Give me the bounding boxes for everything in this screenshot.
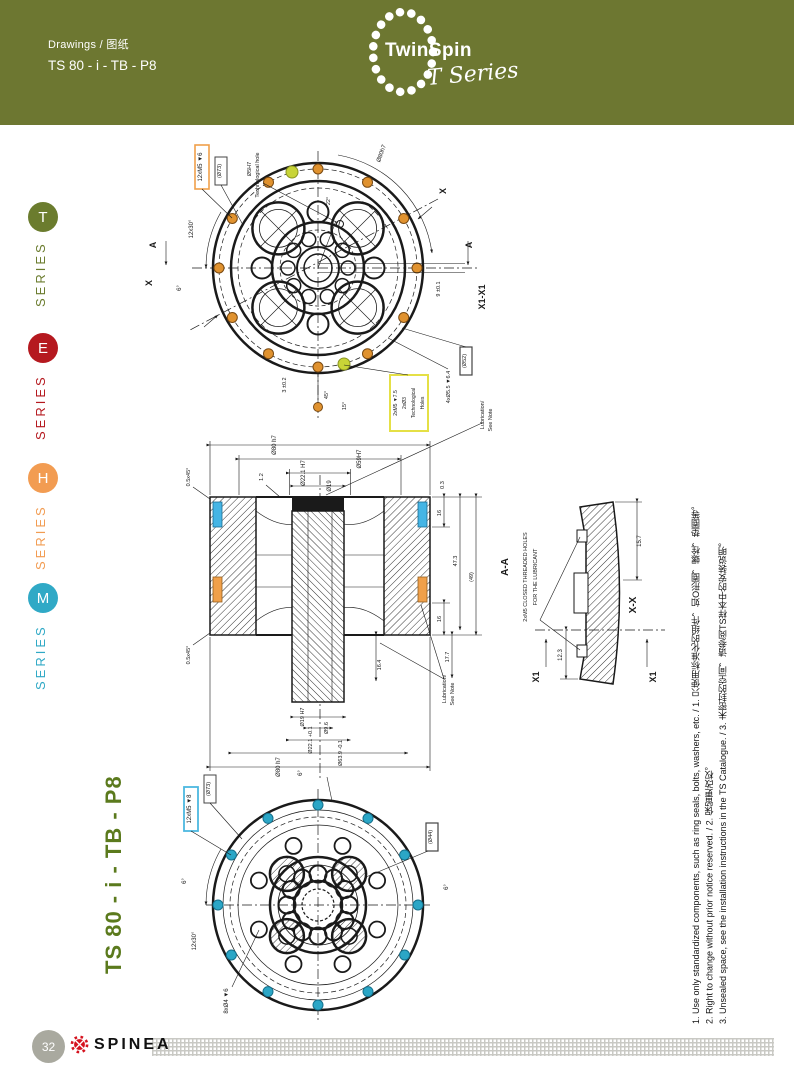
- footnotes: 1. Use only standardized components, suc…: [690, 348, 738, 1024]
- section-marker-x1: X1: [648, 671, 658, 682]
- dim-label: Ø19: [327, 480, 333, 492]
- dim-label: Ø9.6: [324, 722, 330, 734]
- dim-label: 6°: [177, 285, 183, 291]
- dim-label: 45°: [324, 391, 330, 399]
- dim-label: 16.4: [377, 660, 383, 671]
- dim-label: Ø63.9 -0.1: [338, 740, 344, 766]
- dim-label: 16: [437, 616, 443, 622]
- callout-label: 12xM5 ▼6: [198, 152, 204, 182]
- technical-drawing: A A X X 9 ±0.1 X1-X1 12xM5 ▼6 (Ø73) Ø5H7…: [80, 125, 760, 1030]
- dim-label: 9 ±0.1: [436, 281, 442, 296]
- dim-label: 4xØ5.5 ▼6.4: [446, 371, 452, 403]
- section-marker-a: A: [148, 241, 158, 248]
- series-label-e: SERIES: [33, 370, 53, 440]
- footer-pattern: [152, 1038, 774, 1056]
- note-label: Lubrication/: [480, 400, 486, 429]
- footer: 32 SPINEA: [0, 1028, 794, 1077]
- dim-label: Ø22.1 H7: [301, 459, 307, 485]
- section-marker-x: X: [144, 280, 154, 286]
- section-marker-x1: X1: [531, 671, 541, 682]
- model-title-vertical: TS 80 - i - TB - P8: [101, 746, 139, 974]
- callout-label: Holes: [420, 396, 426, 409]
- gear-icon: [70, 1035, 89, 1054]
- note-label: FOR THE LUBRICANT: [533, 548, 539, 605]
- page-title: TS 80 - i - TB - P8: [48, 58, 157, 73]
- section-label-xx: X-X: [628, 596, 639, 613]
- dim-label: 16: [437, 510, 443, 516]
- callout-label: Technological: [411, 388, 417, 418]
- dim-label: 8xØ4 ▼6: [224, 988, 230, 1014]
- page-number-badge: 32: [32, 1030, 65, 1063]
- section-label-aa: A-A: [500, 558, 511, 576]
- tech-hole-label: Ø5H7: [247, 162, 253, 176]
- dim-label: 22°: [326, 197, 332, 205]
- twinspin-logo: TwinSpin T Series: [355, 4, 535, 109]
- footnote-2: 2. Right to change without prior notice …: [704, 348, 718, 1024]
- section-marker-a: A: [464, 241, 474, 248]
- tech-hole-label: Technological hole: [255, 152, 261, 197]
- dim-label: 6°: [444, 884, 450, 890]
- dim-label: (49): [469, 572, 475, 582]
- badge-letter: H: [38, 470, 49, 487]
- dim-label: 12x30°: [192, 931, 198, 950]
- side-section-view: X1 X1 15.7 12.3 X-X 2xM5 CLOSED THREADED…: [523, 502, 665, 684]
- callout-label: (Ø73): [206, 782, 212, 796]
- dim-label: 12.3: [558, 649, 564, 661]
- series-label-m: SERIES: [33, 620, 53, 690]
- dim-label: 47.3: [453, 556, 459, 567]
- dim-label: 6°: [182, 878, 188, 884]
- brand-text: SPINEA: [94, 1036, 172, 1054]
- callout-label: 12xM5 ▼8: [187, 794, 193, 824]
- footnote-1: 1. Use only standardized components, suc…: [690, 348, 704, 1024]
- dim-label: 6°: [298, 770, 304, 776]
- breadcrumb: Drawings / 图纸: [48, 36, 129, 52]
- dim-label: 15°: [342, 402, 348, 410]
- callout-label: 2xØ3: [402, 397, 408, 409]
- dim-label: Ø80 h7: [276, 756, 282, 776]
- spinea-logo: SPINEA: [70, 1035, 172, 1054]
- section-label-x1x1: X1-X1: [477, 284, 487, 309]
- header: Drawings / 图纸 TS 80 - i - TB - P8 TwinSp…: [0, 0, 794, 125]
- dim-label: Ø80h7: [376, 144, 388, 164]
- note-label: 2xM5 CLOSED THREADED HOLES: [523, 532, 529, 622]
- series-label-t: SERIES: [33, 235, 53, 307]
- callout-label: 2xM5 ▼7.5: [393, 390, 399, 416]
- section-marker-x: X: [438, 188, 448, 194]
- dim-label: Ø80 h7: [272, 434, 278, 454]
- dim-label: 0.3: [440, 481, 446, 489]
- dim-label: 12x30°: [189, 219, 195, 238]
- series-badge-t: T: [28, 202, 58, 232]
- dim-label: 15.7: [637, 535, 643, 547]
- dim-label: 0.5x45°: [186, 646, 192, 665]
- callout-label: (Ø44): [428, 830, 434, 844]
- bottom-view: 12xM5 ▼8 (Ø73) (Ø44) 6° 6° 6° 12x30° 8xØ…: [182, 770, 450, 1021]
- footnote-3: 3. Unsealed space, see the installation …: [717, 348, 731, 1024]
- series-badge-e: E: [28, 333, 58, 363]
- top-view: A A X X 9 ±0.1 X1-X1 12xM5 ▼6 (Ø73) Ø5H7…: [144, 144, 487, 431]
- dim-label: 1.2: [259, 473, 265, 481]
- dim-label: Ø19 H7: [300, 708, 306, 727]
- catalogue-page: Drawings / 图纸 TS 80 - i - TB - P8 TwinSp…: [0, 0, 794, 1077]
- logo-brand-text: TwinSpin: [385, 40, 472, 62]
- badge-letter: M: [37, 590, 50, 607]
- section-view: Ø80 h7 Ø59H7 Ø22.1 H7 Ø19 0.5x45° 0.5x45…: [186, 400, 511, 780]
- dim-label: Ø59H7: [357, 449, 363, 469]
- callout-label: (Ø52): [462, 354, 468, 368]
- dim-label: 0.5x45°: [186, 468, 192, 487]
- series-badge-h: H: [28, 463, 58, 493]
- note-label: See Note: [488, 409, 494, 432]
- series-label-h: SERIES: [33, 500, 53, 570]
- note-label: See Note: [450, 683, 456, 706]
- series-badge-m: M: [28, 583, 58, 613]
- dim-label: 3 ±0.2: [282, 377, 288, 392]
- callout-label: (Ø73): [217, 164, 223, 178]
- dim-label: 17.7: [445, 652, 451, 663]
- badge-letter: T: [38, 209, 47, 226]
- badge-letter: E: [38, 340, 48, 357]
- dim-label: Ø22.1 +0.1: [308, 726, 314, 753]
